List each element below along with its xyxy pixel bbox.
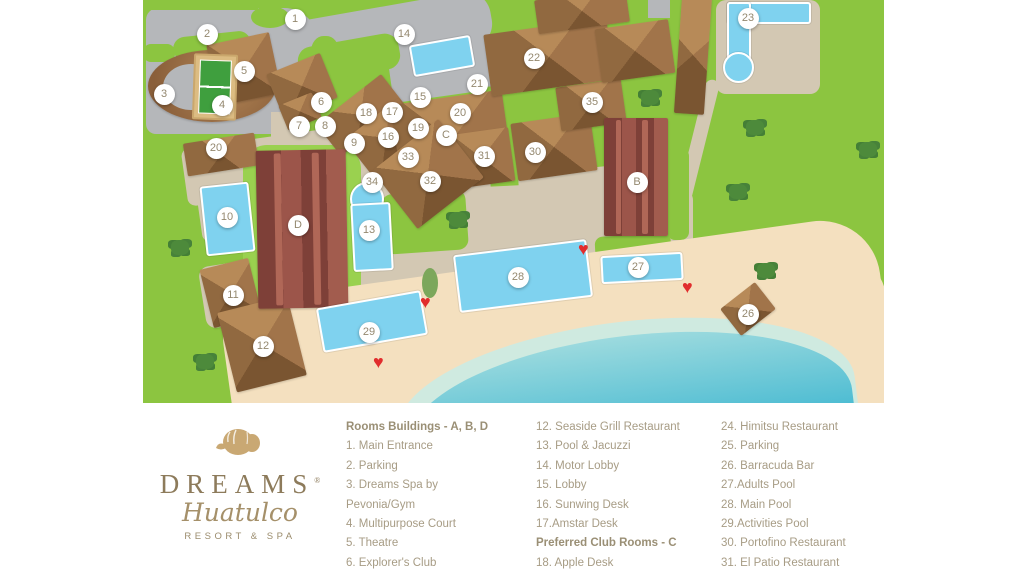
heart-icon: ♥ xyxy=(420,293,431,311)
legend-item: 31. El Patio Restaurant xyxy=(721,554,911,573)
map-marker-20: 20 xyxy=(450,103,471,124)
legend-item: 16. Sunwing Desk xyxy=(536,496,726,515)
map-marker-34: 34 xyxy=(362,172,383,193)
legend-item: 24. Himitsu Restaurant xyxy=(721,418,911,437)
map-marker-14: 14 xyxy=(394,24,415,45)
map-marker-31: 31 xyxy=(474,146,495,167)
map-marker-13: 13 xyxy=(359,220,380,241)
map-marker-1: 1 xyxy=(285,9,306,30)
legend-item: 29.Activities Pool xyxy=(721,515,911,534)
tree-icon xyxy=(729,184,747,199)
map-marker-28: 28 xyxy=(508,267,529,288)
map-marker-22: 22 xyxy=(524,48,545,69)
tree-icon xyxy=(859,142,877,157)
map-marker-10: 10 xyxy=(217,207,238,228)
legend-item: 1. Main Entrance xyxy=(346,437,536,456)
brand-tagline: RESORT & SPA xyxy=(140,531,340,542)
tree-icon xyxy=(171,240,189,255)
legend-item: 18. Apple Desk xyxy=(536,554,726,573)
tree-icon xyxy=(449,212,467,227)
legend-item: Pevonia/Gym xyxy=(346,496,536,515)
heart-icon: ♥ xyxy=(578,240,589,258)
tree-icon xyxy=(641,90,659,105)
map-marker-8: 8 xyxy=(315,116,336,137)
resort-map-page: ♥♥♥♥ 12345678910111213141516171819202021… xyxy=(0,0,1024,576)
map-markers: 1234567891011121314151617181920202122232… xyxy=(143,0,884,403)
tree-icon xyxy=(746,120,764,135)
heart-icon: ♥ xyxy=(682,278,693,296)
brand-script: Huatulco xyxy=(140,498,340,527)
legend-header: Rooms Buildings - A, B, D xyxy=(346,418,536,437)
legend-item: 5. Theatre xyxy=(346,534,536,553)
map-marker-20: 20 xyxy=(206,138,227,159)
map-marker-23: 23 xyxy=(738,8,759,29)
legend-item: 25. Parking xyxy=(721,437,911,456)
map-marker-15: 15 xyxy=(410,87,431,108)
map-marker-3: 3 xyxy=(154,84,175,105)
legend-item: 27.Adults Pool xyxy=(721,476,911,495)
map-marker-11: 11 xyxy=(223,285,244,306)
shell-icon xyxy=(214,424,266,458)
map-marker-9: 9 xyxy=(344,133,365,154)
resort-logo: DREAMS® Huatulco RESORT & SPA xyxy=(140,424,340,542)
legend-header: Preferred Club Rooms - C xyxy=(536,534,726,553)
map-marker-35: 35 xyxy=(582,92,603,113)
map-marker-18: 18 xyxy=(356,103,377,124)
map-marker-B: B xyxy=(627,172,648,193)
heart-icon: ♥ xyxy=(373,353,384,371)
tree-icon xyxy=(196,354,214,369)
legend-item: 28. Main Pool xyxy=(721,496,911,515)
legend-item: 4. Multipurpose Court xyxy=(346,515,536,534)
map-marker-D: D xyxy=(288,215,309,236)
map-marker-7: 7 xyxy=(289,116,310,137)
legend-item: 6. Explorer's Club xyxy=(346,554,536,573)
map-marker-33: 33 xyxy=(398,147,419,168)
map-marker-32: 32 xyxy=(420,171,441,192)
legend-item: 17.Amstar Desk xyxy=(536,515,726,534)
map-marker-6: 6 xyxy=(311,92,332,113)
map-marker-19: 19 xyxy=(408,118,429,139)
brand-name: DREAMS® xyxy=(140,469,340,500)
legend-item: 2. Parking xyxy=(346,457,536,476)
legend-item: 12. Seaside Grill Restaurant xyxy=(536,418,726,437)
map-marker-12: 12 xyxy=(253,336,274,357)
map-marker-17: 17 xyxy=(382,102,403,123)
map-marker-30: 30 xyxy=(525,142,546,163)
legend-item: 26. Barracuda Bar xyxy=(721,457,911,476)
registered-mark: ® xyxy=(314,476,320,485)
map-marker-4: 4 xyxy=(212,95,233,116)
resort-map: ♥♥♥♥ 12345678910111213141516171819202021… xyxy=(143,0,884,403)
map-marker-5: 5 xyxy=(234,61,255,82)
legend-item: 13. Pool & Jacuzzi xyxy=(536,437,726,456)
map-marker-21: 21 xyxy=(467,74,488,95)
legend-item: 3. Dreams Spa by xyxy=(346,476,536,495)
map-marker-26: 26 xyxy=(738,304,759,325)
map-marker-2: 2 xyxy=(197,24,218,45)
map-marker-16: 16 xyxy=(378,127,399,148)
tree-icon xyxy=(757,263,775,278)
map-marker-C: C xyxy=(436,125,457,146)
legend-column-3: 24. Himitsu Restaurant25. Parking26. Bar… xyxy=(721,418,911,576)
legend-column-2: 12. Seaside Grill Restaurant13. Pool & J… xyxy=(536,418,726,576)
legend-item: 30. Portofino Restaurant xyxy=(721,534,911,553)
map-marker-27: 27 xyxy=(628,257,649,278)
legend-column-1: Rooms Buildings - A, B, D1. Main Entranc… xyxy=(346,418,536,573)
legend-item: 14. Motor Lobby xyxy=(536,457,726,476)
legend-item: 15. Lobby xyxy=(536,476,726,495)
map-marker-29: 29 xyxy=(359,322,380,343)
